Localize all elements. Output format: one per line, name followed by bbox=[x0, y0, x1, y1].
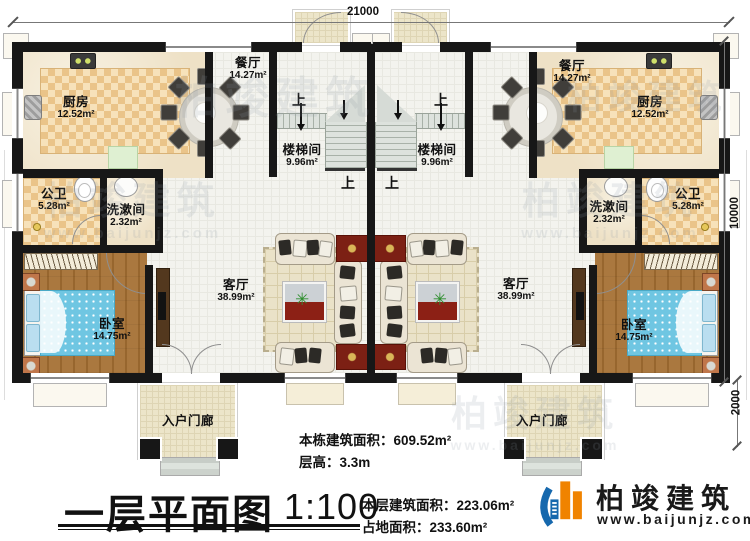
wash-sink bbox=[604, 176, 628, 197]
stove bbox=[646, 53, 672, 69]
dining-chair bbox=[565, 105, 582, 121]
wall bbox=[108, 373, 162, 383]
sofa-cushion bbox=[447, 347, 463, 366]
tv-stand bbox=[374, 235, 406, 262]
bath-wall bbox=[12, 245, 163, 253]
stat-floor-area: 本层建筑面积：223.06m² bbox=[362, 494, 514, 514]
stair-arrow-head bbox=[437, 124, 445, 131]
sofa-cushion bbox=[422, 240, 435, 256]
sofa-cushion bbox=[386, 323, 402, 338]
window bbox=[30, 373, 110, 383]
sofa-cushion bbox=[340, 305, 356, 319]
porch-pillar bbox=[138, 437, 162, 461]
kitchen-mat bbox=[604, 146, 634, 169]
stair-up-label: 上 bbox=[341, 173, 355, 193]
room-label-kitchen-right: 厨房12.52m² bbox=[605, 96, 695, 121]
frame-edge bbox=[746, 150, 747, 400]
tv-stand bbox=[336, 344, 368, 370]
tv bbox=[576, 292, 584, 320]
sofa-cushion bbox=[278, 239, 292, 255]
porch-pillar bbox=[580, 437, 604, 461]
bed-pillow bbox=[26, 324, 40, 352]
kitchen-sink bbox=[700, 95, 718, 120]
porch-pillar bbox=[216, 437, 240, 461]
wall bbox=[12, 42, 23, 88]
wall bbox=[371, 42, 402, 52]
sofa-cushion bbox=[294, 348, 307, 364]
stair-arrow-head bbox=[297, 124, 305, 131]
kitchen-wall bbox=[12, 169, 163, 178]
window bbox=[490, 42, 577, 52]
dining-chair bbox=[161, 105, 178, 121]
window bbox=[284, 373, 346, 383]
wall bbox=[12, 42, 165, 52]
room-label-bedroom-right: 卧室14.75m² bbox=[589, 319, 679, 344]
wall bbox=[458, 373, 522, 383]
plant-icon: ✳ bbox=[295, 291, 309, 308]
party-wall bbox=[367, 42, 371, 383]
tv-stand bbox=[374, 344, 406, 370]
bed-pillow bbox=[702, 294, 716, 322]
stair-arrow-head bbox=[340, 113, 348, 120]
window bbox=[396, 373, 458, 383]
porch-pillar bbox=[502, 437, 526, 461]
sofa-cushion bbox=[387, 305, 403, 319]
title-underline-thin bbox=[58, 529, 360, 530]
sofa-cushion bbox=[308, 347, 322, 363]
porch-steps bbox=[160, 457, 220, 476]
kitchen-mat bbox=[108, 146, 138, 169]
porch-steps bbox=[522, 457, 582, 476]
room-label-stairwell-left: 楼梯间9.96m² bbox=[257, 144, 347, 169]
room-label-living-left: 客厅38.99m² bbox=[191, 279, 281, 304]
sofa-cushion bbox=[384, 285, 402, 301]
bed-pillow bbox=[26, 294, 40, 322]
wall bbox=[220, 373, 284, 383]
sofa-cushion bbox=[339, 323, 355, 338]
plant-icon: ✳ bbox=[433, 291, 447, 308]
room-label-porch-left: 入户门廊 bbox=[143, 415, 233, 428]
room-label-living-right: 客厅38.99m² bbox=[471, 278, 561, 303]
window-sill bbox=[398, 383, 456, 405]
dimension-porch-value: 2000 bbox=[731, 383, 744, 423]
stair-up-label: 上 bbox=[434, 90, 448, 110]
window bbox=[632, 373, 712, 383]
brand-website: www.baijunjz.com bbox=[597, 511, 750, 527]
sofa-cushion bbox=[409, 240, 424, 258]
dining-chair bbox=[233, 105, 250, 121]
nightstand bbox=[22, 273, 40, 291]
wall bbox=[577, 42, 730, 52]
sofa-cushion bbox=[279, 347, 295, 366]
stair-arrow bbox=[397, 100, 399, 114]
bed-sheet bbox=[676, 291, 702, 353]
stove bbox=[70, 53, 96, 69]
room-label-stairwell-right: 楼梯间9.96m² bbox=[392, 144, 482, 169]
sofa-cushion bbox=[339, 285, 357, 301]
room-label-washroom-left: 洗漱间2.32m² bbox=[81, 204, 171, 229]
wardrobe bbox=[644, 253, 718, 270]
wall bbox=[371, 373, 398, 383]
dimension-top-value: 21000 bbox=[338, 6, 388, 18]
bath-wall bbox=[579, 245, 730, 253]
room-label-washroom-right: 洗漱间2.32m² bbox=[564, 201, 654, 226]
party-wall bbox=[371, 42, 375, 383]
room-label-bedroom-left: 卧室14.75m² bbox=[67, 318, 157, 343]
sofa-cushion bbox=[434, 348, 447, 364]
floor-drain bbox=[700, 222, 710, 232]
tv-stand bbox=[336, 235, 368, 262]
room-label-porch-right: 入户门廊 bbox=[497, 415, 587, 428]
stair-up-label: 上 bbox=[292, 90, 306, 110]
room-label-dining-right: 餐厅14.27m² bbox=[527, 60, 617, 85]
sofa-cushion bbox=[386, 265, 402, 279]
window-sill bbox=[286, 383, 344, 405]
dining-chair bbox=[493, 105, 510, 121]
stair-up-label: 上 bbox=[385, 173, 399, 193]
bed-pillow bbox=[702, 324, 716, 352]
wash-sink bbox=[114, 176, 138, 197]
dimension-line-top bbox=[12, 22, 730, 23]
sofa-cushion bbox=[450, 239, 464, 255]
sofa-cushion bbox=[292, 239, 307, 257]
window-sill bbox=[635, 383, 709, 407]
window bbox=[12, 88, 23, 139]
floor-drain bbox=[32, 222, 42, 232]
tv bbox=[158, 292, 166, 320]
sofa-cushion bbox=[434, 239, 449, 257]
stat-land-area: 占地面积：233.60m² bbox=[362, 516, 487, 536]
stat-total-area: 本栋建筑面积：609.52m² bbox=[299, 429, 451, 449]
stair-arrow bbox=[343, 100, 345, 114]
room-label-dining-left: 餐厅14.27m² bbox=[203, 57, 293, 82]
floorplan-canvas: ✳ bbox=[0, 0, 750, 541]
brand-logo-icon bbox=[536, 476, 590, 530]
sofa-cushion bbox=[339, 265, 355, 279]
stat-floor-height: 层高：3.3m bbox=[299, 451, 370, 471]
title-underline bbox=[58, 524, 360, 527]
sofa-cushion bbox=[420, 347, 434, 363]
room-label-kitchen-left: 厨房12.52m² bbox=[31, 96, 121, 121]
window-sill bbox=[33, 383, 107, 407]
kitchen-wall bbox=[579, 169, 730, 178]
wardrobe bbox=[24, 253, 98, 270]
wall bbox=[580, 373, 634, 383]
room-label-bathroom-right: 公卫5.28m² bbox=[643, 188, 733, 213]
stair-arrow-head bbox=[394, 113, 402, 120]
wall bbox=[12, 373, 30, 383]
sofa-cushion bbox=[318, 240, 333, 258]
window bbox=[165, 42, 252, 52]
plan-title: 一层平面图 bbox=[64, 482, 274, 540]
nightstand bbox=[702, 273, 720, 291]
wall bbox=[12, 137, 23, 173]
